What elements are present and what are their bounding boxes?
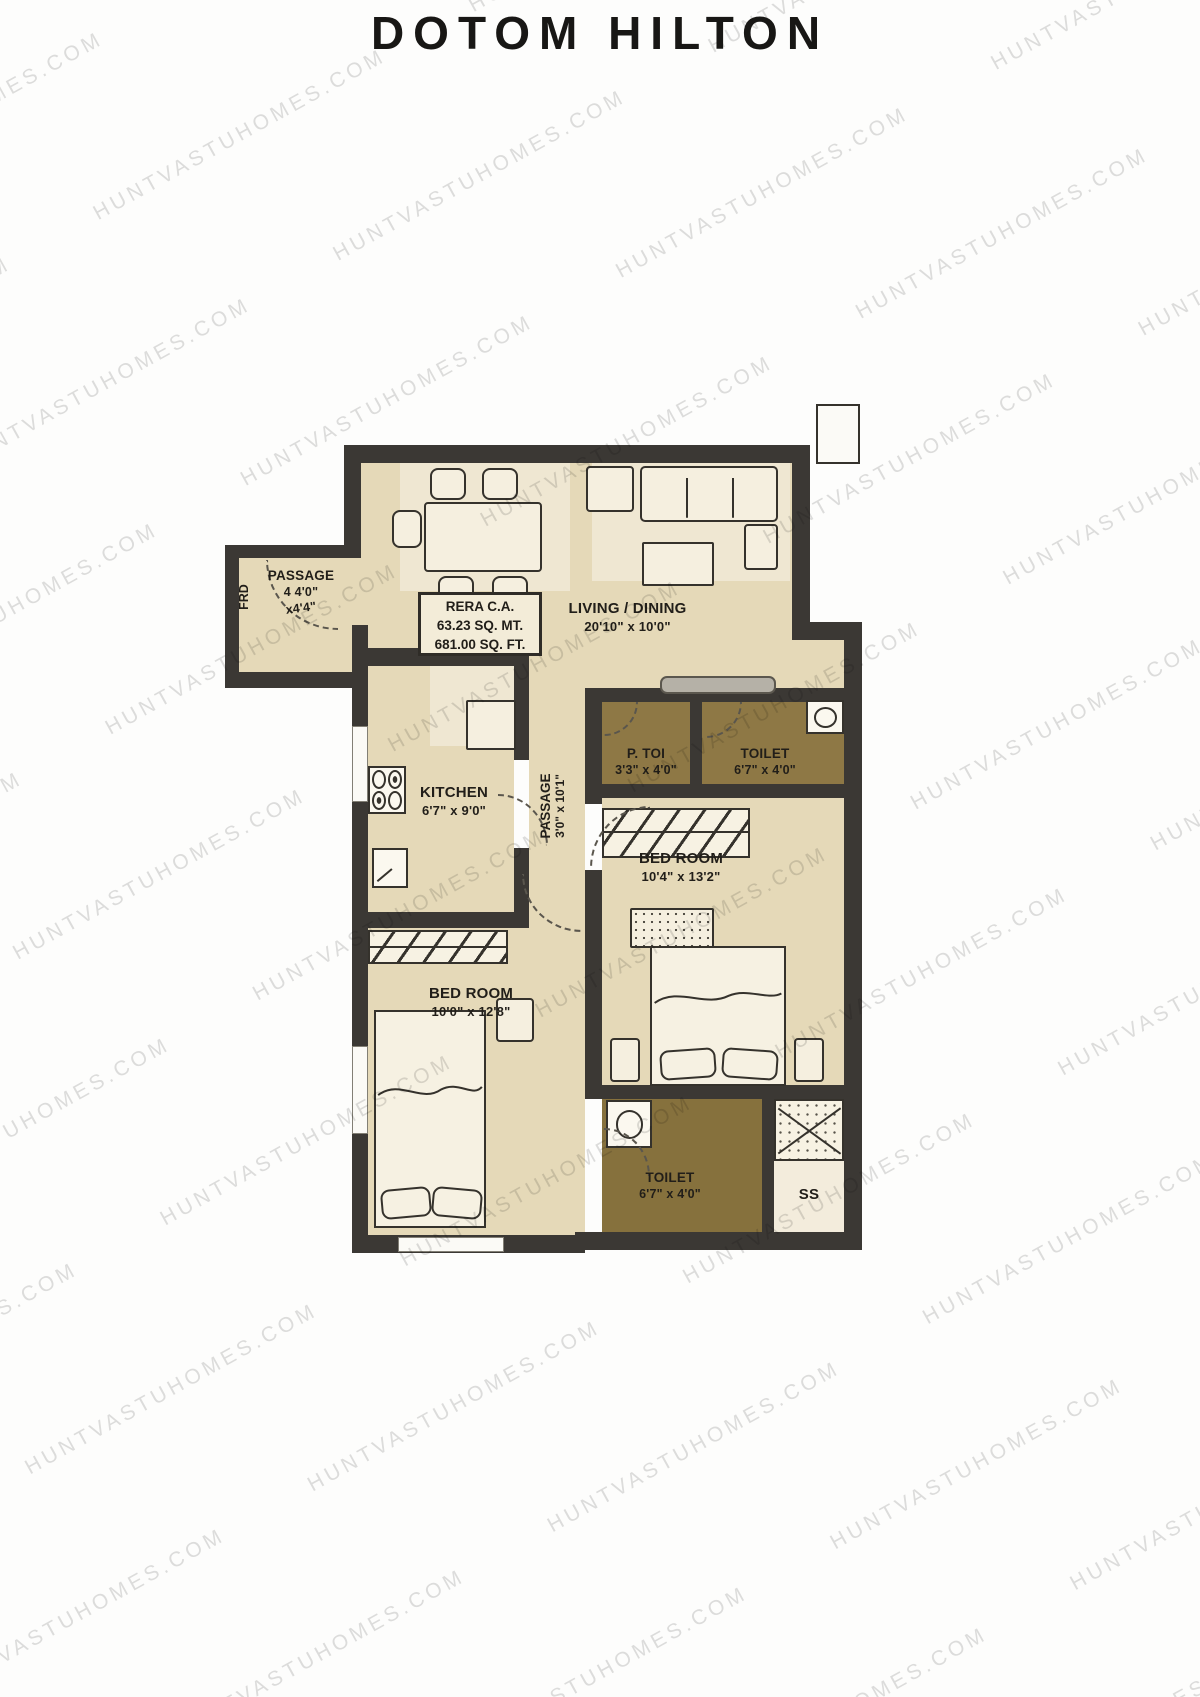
room-name: TOILET (704, 746, 826, 762)
bed-left (374, 1010, 486, 1228)
kitchen-label: KITCHEN 6'7" x 9'0" (384, 784, 524, 820)
bedroom-bottom-window (398, 1237, 504, 1252)
room-size: 20'10" x 10'0" (545, 618, 710, 636)
room-name: PASSAGE (538, 746, 553, 866)
room-name: PASSAGE (246, 568, 356, 584)
wc-icon (660, 1100, 686, 1138)
wc-icon (766, 704, 792, 742)
room-name: TOILET (600, 1170, 740, 1186)
dining-chair (482, 468, 518, 500)
side-table (586, 466, 634, 512)
rera-line1: RERA C.A. (421, 597, 539, 616)
side-table (610, 1038, 640, 1082)
wall-passage-bottom (225, 672, 361, 688)
rera-line3: 681.00 SQ. FT. (421, 635, 539, 654)
wall-bedroom-divider-lower (585, 870, 602, 1085)
room-size: 6'7" x 4'0" (704, 762, 826, 778)
sink-icon (372, 848, 408, 888)
room-name: P. TOI (600, 746, 692, 762)
rera-line2: 63.23 SQ. MT. (421, 616, 539, 635)
page: DOTOM HILTON HUNTVASTUHOMES.COM HUNTVAST… (0, 0, 1200, 1697)
watermark-text: HUNTVASTUHOMES.COM HUNTVASTUHOMES.COM HU… (0, 133, 1200, 1478)
wall-right-upper (792, 445, 810, 630)
mid-passage-label: PASSAGE 3'0" x 10'1" (538, 746, 578, 866)
duct-box (816, 404, 860, 464)
dining-chair (430, 468, 466, 500)
toilet-top-label: TOILET 6'7" x 4'0" (704, 746, 826, 778)
wall-left-upper (344, 445, 361, 558)
rera-box: RERA C.A. 63.23 SQ. MT. 681.00 SQ. FT. (418, 592, 542, 656)
sofa (640, 466, 778, 522)
frd-door-label: FRD (237, 575, 251, 619)
watermark-text: HUNTVASTUHOMES.COM HUNTVASTUHOMES.COM HU… (204, 1462, 1200, 1697)
pillow (659, 1047, 717, 1081)
watermark-text: HUNTVASTUHOMES.COM HUNTVASTUHOMES.COM HU… (0, 1064, 1200, 1697)
page-title: DOTOM HILTON (0, 6, 1200, 60)
room-size: 6'7" x 9'0" (384, 802, 524, 820)
bedroom-right-label: BED ROOM 10'4" x 13'2" (596, 850, 766, 886)
wall-right-lower (844, 622, 862, 1250)
powder-toilet-label: P. TOI 3'3" x 4'0" (600, 746, 692, 778)
room-size: 10'0" x 12'8" (386, 1003, 556, 1021)
pillow (721, 1047, 779, 1081)
room-name: BED ROOM (596, 850, 766, 868)
room-name: LIVING / DINING (545, 600, 710, 618)
living-label: LIVING / DINING 20'10" x 10'0" (545, 600, 710, 636)
wall-passage-top (225, 545, 361, 558)
room-name: BED ROOM (386, 985, 556, 1003)
watermark-text: HUNTVASTUHOMES.COM HUNTVASTUHOMES.COM HU… (0, 1330, 1200, 1697)
wall-kitchen-right-upper (514, 648, 529, 760)
bed-right (650, 946, 786, 1086)
armchair (744, 524, 778, 570)
service-slab-label: SS (774, 1186, 844, 1204)
wall-bedroom-divider-upper (585, 784, 602, 804)
wall-top (344, 445, 810, 463)
service-slab-hatch (774, 1099, 844, 1161)
wall-toilet-bottom-top (585, 1085, 862, 1099)
wall-toilet-ss-divider (762, 1099, 774, 1232)
side-table (794, 1038, 824, 1082)
wall-toilets-bottom (585, 784, 862, 798)
watermark-text: HUNTVASTUHOMES.COM HUNTVASTUHOMES.COM HU… (57, 1197, 1200, 1697)
kitchen-window (352, 726, 368, 802)
pillow (431, 1186, 483, 1220)
room-size: 3'3" x 4'0" (600, 762, 692, 778)
coffee-table (642, 542, 714, 586)
toilet-door-lintel (660, 676, 776, 694)
wall-bottom-right (575, 1232, 862, 1250)
bedroom-left-window (352, 1046, 368, 1134)
kitchen-counter-unit (466, 700, 516, 750)
watermark-text: HUNTVASTUHOMES.COM HUNTVASTUHOMES.COM HU… (0, 0, 1138, 414)
pillow (380, 1186, 432, 1220)
dining-chair (392, 510, 422, 548)
room-name: SS (774, 1186, 844, 1204)
room-size: 10'4" x 13'2" (596, 868, 766, 886)
washbasin-icon (806, 700, 844, 734)
room-size: 6'7" x 4'0" (600, 1186, 740, 1202)
toilet-bottom-label: TOILET 6'7" x 4'0" (600, 1170, 740, 1202)
wall-kitchen-bottom (352, 912, 515, 928)
entry-passage-label: PASSAGE 4 4'0" x4'4" (246, 568, 356, 616)
dining-table (424, 502, 542, 572)
room-size: 3'0" x 10'1" (553, 746, 567, 866)
wardrobe-left (368, 930, 508, 964)
bedroom-left-label: BED ROOM 10'0" x 12'8" (386, 985, 556, 1021)
dresser-right (630, 908, 714, 948)
room-name: KITCHEN (384, 784, 524, 802)
